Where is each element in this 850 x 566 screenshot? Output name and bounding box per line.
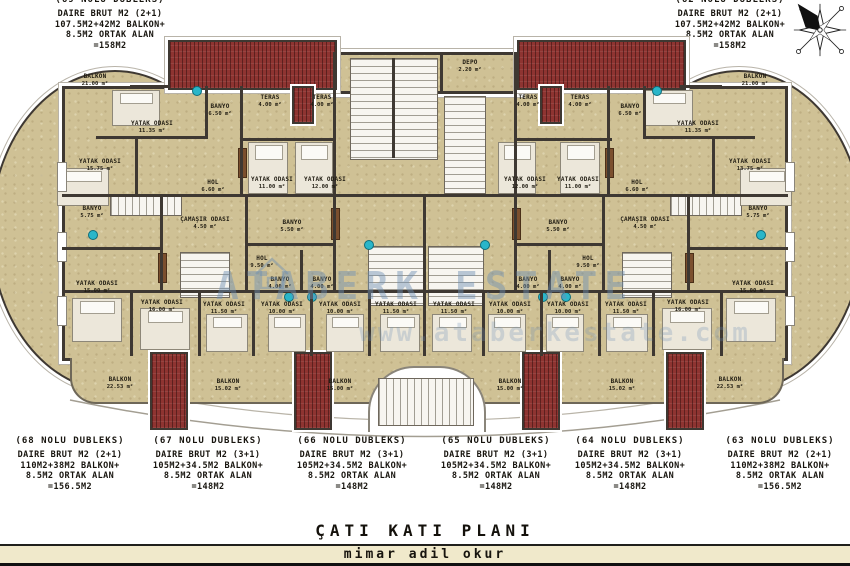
room-label: BALKON 15.02 m² — [215, 379, 242, 392]
room-label: BALKON 15.02 m² — [609, 379, 636, 392]
room-label: YATAK ODASI 12.00 m² — [504, 177, 546, 190]
room-name: YATAK ODASI — [251, 177, 293, 184]
unit-line: 8.5M2 ORTAK ALAN — [725, 471, 834, 482]
room-area: 4.50 m² — [180, 223, 230, 229]
unit-title: (65 NOLU DUBLEKS) — [441, 436, 551, 446]
unit-info-block: (63 NOLU DUBLEKS) DAIRE BRUT M2 (2+1) 11… — [725, 436, 834, 492]
room-area: 11.50 m² — [375, 308, 417, 314]
room-area: 5.75 m² — [80, 212, 103, 218]
room-name: YATAK ODASI — [131, 121, 173, 128]
room-label: TERAS 4.00 m² — [258, 95, 281, 108]
room-area: 5.50 m² — [546, 226, 569, 232]
room-label: BANYO 6.50 m² — [618, 104, 641, 117]
room-label: TERAS 4.00 m² — [310, 95, 333, 108]
room-label: BANYO 5.50 m² — [280, 220, 303, 233]
room-label: ÇAMAŞIR ODASI 4.50 m² — [180, 217, 230, 230]
unit-line: DAIRE BRUT M2 (3+1) — [297, 450, 407, 461]
room-area: 6.50 m² — [208, 110, 231, 116]
unit-line: DAIRE BRUT M2 (3+1) — [153, 450, 263, 461]
room-label: BALKON 21.00 m² — [82, 74, 109, 87]
room-label: BANYO 5.75 m² — [746, 206, 769, 219]
room-name: BALKON — [215, 379, 242, 386]
room-area: 10.00 m² — [547, 308, 589, 314]
room-name: BALKON — [497, 379, 524, 386]
unit-line: 8.5M2 ORTAK ALAN — [153, 471, 263, 482]
room-name: ÇAMAŞIR ODASI — [620, 217, 670, 224]
plan-title: ÇATI KATI PLANI — [0, 521, 850, 540]
room-name: YATAK ODASI — [677, 121, 719, 128]
watermark-url: www.ataberkestate.com — [260, 318, 850, 348]
room-name: BANYO — [208, 104, 231, 111]
room-area: 5.75 m² — [746, 212, 769, 218]
room-name: TERAS — [310, 95, 333, 102]
room-area: 15.02 m² — [609, 385, 636, 391]
room-area: 4.00 m² — [516, 101, 539, 107]
unit-title: (63 NOLU DUBLEKS) — [725, 436, 834, 446]
unit-info-block: (65 NOLU DUBLEKS) DAIRE BRUT M2 (3+1) 10… — [441, 436, 551, 492]
room-name: YATAK ODASI — [557, 177, 599, 184]
unit-info-block: (67 NOLU DUBLEKS) DAIRE BRUT M2 (3+1) 10… — [153, 436, 263, 492]
unit-line: DAIRE BRUT M2 (3+1) — [441, 450, 551, 461]
unit-line: DAIRE BRUT M2 (2+1) — [15, 450, 124, 461]
room-area: 6.50 m² — [618, 110, 641, 116]
room-label: BALKON 15.00 m² — [327, 379, 354, 392]
unit-title: (67 NOLU DUBLEKS) — [153, 436, 263, 446]
room-label: BALKON 15.00 m² — [497, 379, 524, 392]
room-name: BALKON — [609, 379, 636, 386]
bottom-unit-info: (68 NOLU DUBLEKS) DAIRE BRUT M2 (2+1) 11… — [0, 436, 850, 506]
room-area: 4.00 m² — [258, 101, 281, 107]
room-name: BANYO — [546, 220, 569, 227]
room-label: YATAK ODASI 15.75 m² — [79, 159, 121, 172]
unit-line: =148M2 — [297, 482, 407, 493]
room-area: 21.00 m² — [742, 80, 769, 86]
unit-line: 8.5M2 ORTAK ALAN — [441, 471, 551, 482]
room-label: YATAK ODASI 11.00 m² — [557, 177, 599, 190]
room-area: 11.50 m² — [203, 308, 245, 314]
unit-line: DAIRE BRUT M2 (3+1) — [575, 450, 685, 461]
unit-info-block: (66 NOLU DUBLEKS) DAIRE BRUT M2 (3+1) 10… — [297, 436, 407, 492]
unit-line: 105M2+34.5M2 BALKON+ — [575, 461, 685, 472]
room-name: BALKON — [742, 74, 769, 81]
room-area: 2.20 m² — [458, 66, 481, 72]
room-area: 4.50 m² — [620, 223, 670, 229]
room-label: TERAS 4.00 m² — [568, 95, 591, 108]
room-area: 15.00 m² — [327, 385, 354, 391]
room-name: YATAK ODASI — [504, 177, 546, 184]
unit-title: (66 NOLU DUBLEKS) — [297, 436, 407, 446]
room-label: YATAK ODASI 11.00 m² — [251, 177, 293, 190]
room-area: 15.00 m² — [497, 385, 524, 391]
unit-line: =148M2 — [153, 482, 263, 493]
unit-line: 110M2+38M2 BALKON+ — [15, 461, 124, 472]
room-name: BALKON — [327, 379, 354, 386]
room-area: 4.00 m² — [310, 101, 333, 107]
room-name: YATAK ODASI — [304, 177, 346, 184]
watermark-text: ATABERK ESTATE — [0, 264, 850, 308]
room-label: YATAK ODASI 11.35 m² — [677, 121, 719, 134]
room-label: YATAK ODASI 13.75 m² — [729, 159, 771, 172]
floor-plan-sheet: (69 NOLU DUBLEKS) DAIRE BRUT M2 (2+1) 10… — [0, 0, 850, 566]
room-label: HOL 6.60 m² — [201, 180, 224, 193]
room-area: 15.02 m² — [215, 385, 242, 391]
room-area: 11.00 m² — [251, 183, 293, 189]
room-name: TERAS — [568, 95, 591, 102]
unit-line: 110M2+38M2 BALKON+ — [725, 461, 834, 472]
room-area: 13.75 m² — [729, 165, 771, 171]
room-area: 10.00 m² — [261, 308, 303, 314]
unit-line: =156.5M2 — [15, 482, 124, 493]
room-name: BALKON — [107, 377, 134, 384]
unit-title: (68 NOLU DUBLEKS) — [15, 436, 124, 446]
room-name: TERAS — [258, 95, 281, 102]
room-name: BANYO — [280, 220, 303, 227]
room-area: 11.50 m² — [605, 308, 647, 314]
room-label: BALKON 22.53 m² — [717, 377, 744, 390]
unit-line: 8.5M2 ORTAK ALAN — [575, 471, 685, 482]
room-name: BANYO — [746, 206, 769, 213]
room-name: BALKON — [82, 74, 109, 81]
room-name: TERAS — [516, 95, 539, 102]
room-label: BANYO 5.75 m² — [80, 206, 103, 219]
room-area: 15.75 m² — [79, 165, 121, 171]
room-area: 11.35 m² — [131, 127, 173, 133]
room-label: TERAS 4.00 m² — [516, 95, 539, 108]
unit-line: 8.5M2 ORTAK ALAN — [297, 471, 407, 482]
room-label: BANYO 6.50 m² — [208, 104, 231, 117]
unit-line: =148M2 — [575, 482, 685, 493]
unit-line: 105M2+34.5M2 BALKON+ — [153, 461, 263, 472]
room-area: 6.60 m² — [201, 186, 224, 192]
unit-info-block: (64 NOLU DUBLEKS) DAIRE BRUT M2 (3+1) 10… — [575, 436, 685, 492]
room-area: 22.53 m² — [717, 383, 744, 389]
unit-line: =156.5M2 — [725, 482, 834, 493]
room-name: YATAK ODASI — [729, 159, 771, 166]
room-name: BANYO — [80, 206, 103, 213]
room-area: 22.53 m² — [107, 383, 134, 389]
room-name: YATAK ODASI — [79, 159, 121, 166]
room-area: 12.00 m² — [504, 183, 546, 189]
room-area: 10.00 m² — [319, 308, 361, 314]
room-name: ÇAMAŞIR ODASI — [180, 217, 230, 224]
unit-title: (64 NOLU DUBLEKS) — [575, 436, 685, 446]
unit-line: =148M2 — [441, 482, 551, 493]
room-name: BANYO — [618, 104, 641, 111]
room-area: 5.50 m² — [280, 226, 303, 232]
room-area: 4.00 m² — [568, 101, 591, 107]
room-label: YATAK ODASI 11.35 m² — [131, 121, 173, 134]
unit-info-block: (68 NOLU DUBLEKS) DAIRE BRUT M2 (2+1) 11… — [15, 436, 124, 492]
architect-name: mimar adil okur — [344, 547, 506, 562]
unit-line: 105M2+34.5M2 BALKON+ — [441, 461, 551, 472]
unit-line: DAIRE BRUT M2 (2+1) — [725, 450, 834, 461]
room-label: YATAK ODASI 12.00 m² — [304, 177, 346, 190]
room-area: 10.00 m² — [489, 308, 531, 314]
room-label: BALKON 21.00 m² — [742, 74, 769, 87]
room-label: BANYO 5.50 m² — [546, 220, 569, 233]
unit-line: 8.5M2 ORTAK ALAN — [15, 471, 124, 482]
room-label: BALKON 22.53 m² — [107, 377, 134, 390]
unit-line: 105M2+34.5M2 BALKON+ — [297, 461, 407, 472]
room-label: HOL 6.60 m² — [625, 180, 648, 193]
room-area: 11.00 m² — [557, 183, 599, 189]
room-area: 21.00 m² — [82, 80, 109, 86]
architect-bar: mimar adil okur — [0, 544, 850, 566]
room-area: 6.60 m² — [625, 186, 648, 192]
room-label: DEPO 2.20 m² — [458, 60, 481, 73]
room-label: ÇAMAŞIR ODASI 4.50 m² — [620, 217, 670, 230]
room-area: 12.00 m² — [304, 183, 346, 189]
room-area: 11.50 m² — [433, 308, 475, 314]
room-name: BALKON — [717, 377, 744, 384]
room-area: 11.35 m² — [677, 127, 719, 133]
